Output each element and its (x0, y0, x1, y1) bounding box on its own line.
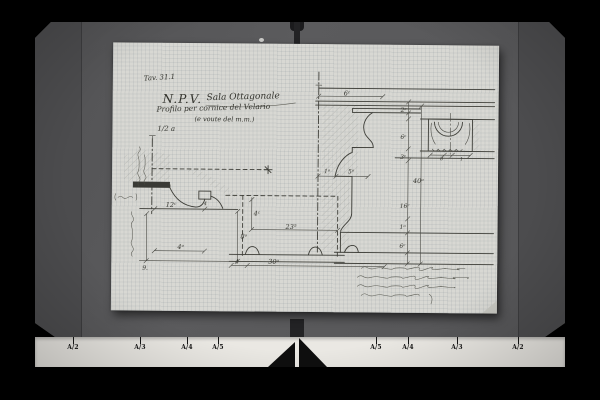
scale-label-a2-left: A/2 (62, 344, 84, 351)
dim-left-span: 4ᵒ (176, 243, 184, 251)
scale-bar: A/2 A/3 A/4 A/5 A/5 A/4 A/3 A/2 (35, 337, 565, 367)
center-recess (225, 195, 385, 266)
hatching (123, 103, 479, 251)
dim-chain-6: 6ᶜ (399, 243, 405, 250)
scale-tick (376, 337, 377, 344)
dim-left-block: 4 (203, 201, 207, 207)
scale-label-a3-left: A/3 (129, 344, 151, 351)
board-left-flap (35, 22, 82, 337)
dim-cap-width: 6ᶜ (344, 89, 351, 97)
dim-off-large: 5ᵒ (348, 168, 355, 175)
scale-tick (140, 337, 141, 344)
dim-base-offset: 4 (234, 259, 239, 265)
dimension-labels: 12ᶜ 4 8ᵒ 4ᵒ 9. 4 4ᶜ 23⁵ 30ᵒ 6ᶜ 1ᵒ 5ᵒ 2ᶜ … (142, 88, 463, 275)
scale-tick (408, 337, 409, 344)
scale-tick (518, 337, 519, 344)
dim-left-index: 9. (142, 265, 148, 272)
scale-tick (187, 337, 188, 344)
dim-chain-4: 16ᶜ (400, 203, 410, 210)
subtitle-paren: (e voute del m.m.) (194, 115, 254, 124)
scale-label: 1/2 a (157, 125, 175, 133)
scale-label-a4-left: A/4 (176, 344, 198, 351)
dim-ornament-a: 8 (440, 156, 443, 162)
dim-center-height: 4ᶜ (253, 210, 261, 218)
dim-chain-2: 6ᶜ (400, 134, 406, 141)
plate-label: Tav. 31.1 (143, 73, 175, 83)
drawing-sheet: Tav. 31.1 N.P.V. Sala Ottagonale Profilo… (111, 42, 499, 313)
title-block: Tav. 31.1 N.P.V. Sala Ottagonale Profilo… (143, 72, 296, 134)
scale-label-a4-right: A/4 (397, 344, 419, 351)
dim-chain-5: 1ᵒ (400, 224, 407, 231)
stand-rod-bottom (290, 319, 304, 337)
scale-label-a5-right: A/5 (365, 344, 387, 351)
subtitle: Profilo per cornice del Velario (155, 102, 270, 114)
scale-tick (457, 337, 458, 344)
archival-photo: Tav. 31.1 N.P.V. Sala Ottagonale Profilo… (0, 0, 600, 400)
dim-chain-1: 2ᶜ (400, 107, 407, 114)
sketch-layer: Tav. 31.1 N.P.V. Sala Ottagonale Profilo… (111, 42, 499, 313)
scale-label-a5-left: A/5 (207, 344, 229, 351)
center-marker-triangle-left (268, 342, 295, 367)
dim-ornament-b: 1 (460, 156, 463, 162)
center-marker-triangle-right (299, 338, 327, 367)
scale-tick (73, 337, 74, 344)
dim-center-width: 23⁵ (285, 223, 297, 231)
dim-chain-total: 40ᵒ (412, 177, 424, 185)
dim-center-base: 30ᵒ (268, 258, 279, 266)
dust-speck (259, 38, 264, 42)
scale-label-a2-right: A/2 (507, 344, 529, 351)
scale-label-a3-right: A/3 (446, 344, 468, 351)
board-right-flap (518, 22, 565, 337)
scale-tick (218, 337, 219, 344)
dim-off-small: 1ᵒ (324, 168, 331, 175)
dim-chain-3: 3ᶜ (400, 154, 406, 161)
dim-left-height: 8ᵒ (240, 232, 247, 240)
ornament-sketch (428, 113, 472, 157)
dim-left-width: 12ᶜ (166, 201, 177, 209)
